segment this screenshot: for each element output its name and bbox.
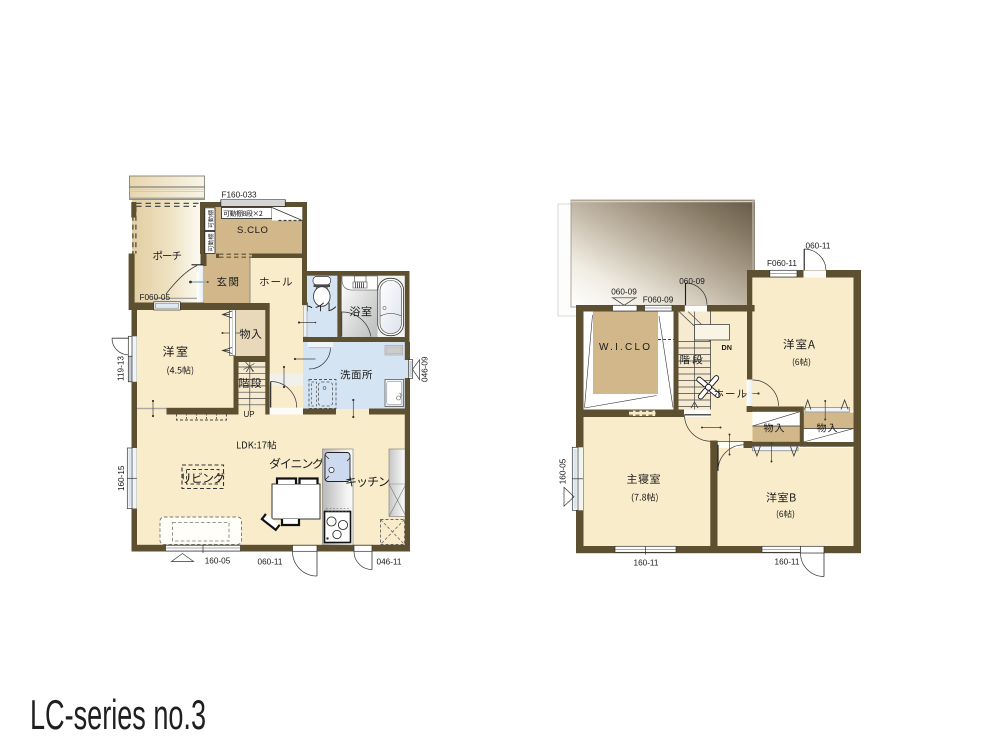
svg-text:F060-09: F060-09 [643, 296, 674, 305]
svg-text:046-11: 046-11 [377, 558, 402, 567]
svg-text:060-09: 060-09 [611, 288, 637, 297]
svg-text:060-11: 060-11 [806, 242, 831, 251]
svg-text:046-09: 046-09 [420, 356, 429, 382]
svg-text:W.I.CLO: W.I.CLO [599, 342, 652, 353]
svg-text:160-05: 160-05 [559, 458, 568, 484]
svg-text:F060-05: F060-05 [140, 293, 171, 302]
svg-text:160-11: 160-11 [775, 558, 800, 567]
svg-text:UP: UP [244, 410, 255, 419]
svg-text:F160-033: F160-033 [222, 191, 257, 200]
svg-text:LC-series no.3: LC-series no.3 [30, 691, 206, 738]
svg-text:119-13: 119-13 [117, 356, 126, 381]
svg-text:F060-11: F060-11 [767, 259, 797, 268]
svg-text:160-11: 160-11 [634, 559, 659, 568]
svg-text:060-11: 060-11 [258, 558, 283, 567]
svg-text:160-05: 160-05 [205, 557, 231, 566]
svg-text:S.CLO: S.CLO [237, 225, 269, 236]
svg-text:DN: DN [722, 343, 732, 352]
svg-text:060-09: 060-09 [679, 277, 705, 286]
svg-text:160-15: 160-15 [117, 465, 126, 491]
